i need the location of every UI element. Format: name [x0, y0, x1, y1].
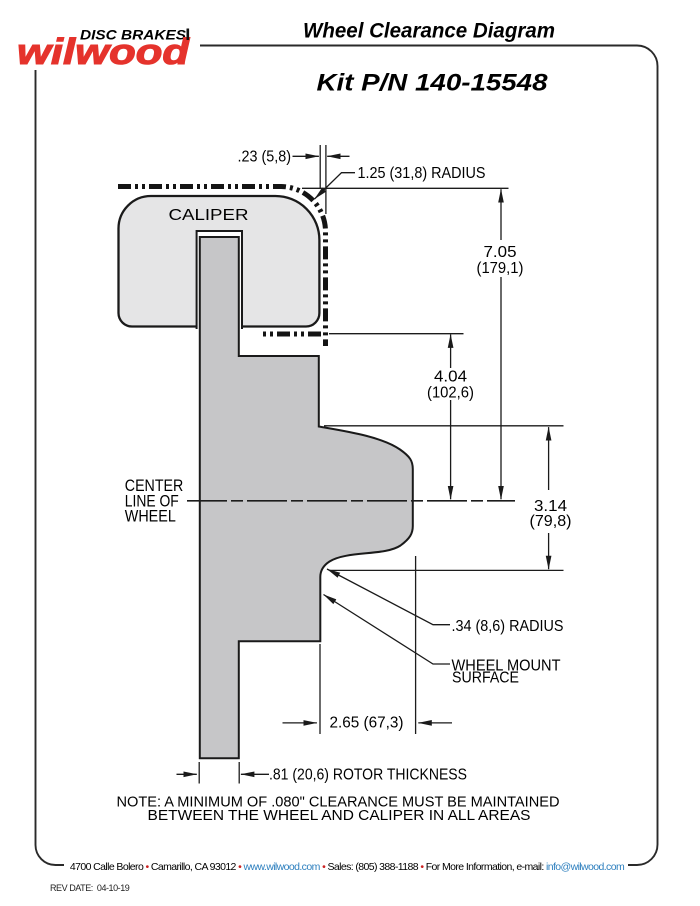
svg-text:(179,1): (179,1) — [477, 260, 524, 277]
svg-text:REV DATE: 04-10-19: REV DATE: 04-10-19 — [50, 883, 130, 893]
svg-text:(102,6): (102,6) — [427, 385, 474, 402]
svg-text:1.25 (31,8) RADIUS: 1.25 (31,8) RADIUS — [358, 165, 486, 182]
svg-text:4700 Calle Bolero • Camarillo,: 4700 Calle Bolero • Camarillo, CA 93012 … — [70, 861, 625, 873]
svg-text:CALIPER: CALIPER — [169, 207, 249, 224]
svg-text:.34 (8,6) RADIUS: .34 (8,6) RADIUS — [452, 618, 564, 635]
svg-text:BETWEEN THE WHEEL AND CALIPER: BETWEEN THE WHEEL AND CALIPER IN ALL ARE… — [148, 807, 531, 824]
svg-text:2.65 (67,3): 2.65 (67,3) — [330, 715, 404, 732]
svg-text:7.05: 7.05 — [484, 244, 517, 261]
svg-text:Kit P/N 140-15548: Kit P/N 140-15548 — [317, 70, 549, 97]
svg-text:SURFACE: SURFACE — [452, 670, 519, 687]
svg-text:WHEEL: WHEEL — [125, 508, 176, 526]
svg-text:Wheel Clearance Diagram: Wheel Clearance Diagram — [303, 20, 555, 43]
svg-text:wilwood: wilwood — [17, 31, 190, 72]
svg-text:4.04: 4.04 — [434, 369, 467, 386]
svg-text:(79,8): (79,8) — [530, 513, 572, 530]
svg-text:.81 (20,6) ROTOR THICKNESS: .81 (20,6) ROTOR THICKNESS — [269, 767, 467, 784]
svg-text:.23 (5,8): .23 (5,8) — [238, 149, 292, 166]
